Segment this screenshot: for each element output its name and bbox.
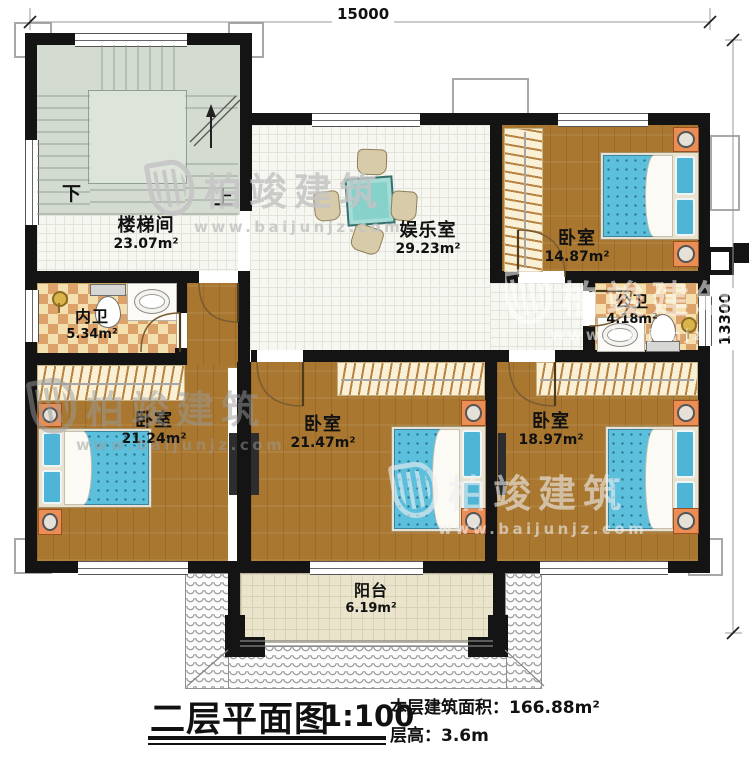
dimension-right: 13300 (716, 288, 734, 350)
wall-segment (485, 350, 509, 362)
window (540, 561, 668, 575)
wall-segment (237, 362, 251, 573)
wardrobe (504, 128, 543, 272)
wall-segment (238, 271, 250, 368)
nightstand (38, 509, 62, 535)
floor-height-info: 层高：3.6m (390, 721, 489, 746)
title-underline (148, 736, 386, 740)
sink (134, 289, 170, 314)
window (25, 290, 39, 342)
nightstand (673, 400, 699, 426)
nightstand (461, 508, 486, 534)
floorplan-canvas: 楼梯间23.07m² 娱乐室29.23m² 卧室14.87m² 内卫5.34m²… (0, 0, 750, 757)
wall-segment (251, 350, 257, 362)
room-label-bath-inner: 内卫5.34m² (66, 308, 117, 342)
game-table (344, 175, 395, 226)
floor-hall-tile (490, 283, 583, 350)
stair-down-label: 下 (62, 179, 81, 206)
balcony-door (310, 561, 423, 575)
balcony-pillar (468, 637, 508, 657)
wall-segment (490, 113, 502, 283)
nightstand (673, 508, 699, 534)
wall-segment (583, 283, 595, 291)
flue-box (706, 247, 734, 275)
flue-block (733, 243, 749, 263)
stair-up-label: 上 (214, 183, 233, 210)
roof-hatch-left (185, 573, 230, 689)
wall-segment (583, 326, 595, 350)
drawing-title: 二层平面图 (150, 691, 330, 742)
room-label-bedroom-s: 卧室21.47m² (290, 414, 355, 452)
tv (251, 433, 259, 495)
chair (357, 148, 388, 175)
room-label-bath-public: 公卫4.18m² (606, 293, 657, 327)
roof-hatch-right (505, 573, 542, 689)
dimension-top: 15000 (332, 5, 394, 23)
bed (600, 152, 699, 240)
bay-window-outline (710, 135, 740, 211)
tv (229, 433, 237, 495)
chair (390, 190, 418, 222)
wall-segment (485, 350, 497, 573)
wall-segment (303, 350, 485, 362)
window (558, 113, 648, 127)
window (698, 296, 712, 346)
shower-head (681, 317, 697, 333)
window (78, 561, 188, 575)
toilet (646, 341, 680, 352)
wall-segment (240, 33, 252, 211)
wardrobe (37, 365, 185, 401)
roof-hatch-bottom (228, 646, 507, 689)
window (25, 140, 39, 225)
wardrobe (536, 362, 698, 396)
wall-segment (565, 271, 710, 283)
room-label-bedroom-se: 卧室18.97m² (518, 411, 583, 449)
nightstand (461, 400, 486, 426)
floor-corridor (187, 283, 238, 368)
floor-area-info: 本层建筑面积：166.88m² (390, 693, 600, 718)
room-label-bedroom-sw: 卧室21.24m² (121, 410, 186, 448)
tv (498, 433, 506, 495)
shower-head (52, 291, 68, 307)
stair-landing (88, 90, 187, 184)
wall-segment (25, 271, 199, 283)
nightstand (38, 403, 62, 427)
chair (313, 190, 342, 223)
wall-segment (175, 348, 187, 365)
title-underline (148, 743, 386, 745)
wall-segment (25, 353, 187, 365)
balcony-pillar (225, 637, 265, 657)
nightstand (673, 241, 699, 267)
window (75, 33, 187, 47)
room-label-stairwell: 楼梯间23.07m² (113, 215, 178, 253)
wardrobe (337, 362, 485, 396)
room-label-balcony: 阳台6.19m² (345, 582, 396, 616)
room-label-entertainment: 娱乐室29.23m² (395, 220, 460, 258)
nightstand (673, 127, 699, 152)
window (312, 113, 420, 127)
wall-segment (495, 271, 518, 283)
toilet (90, 284, 126, 296)
room-label-bedroom-ne: 卧室14.87m² (544, 228, 609, 266)
